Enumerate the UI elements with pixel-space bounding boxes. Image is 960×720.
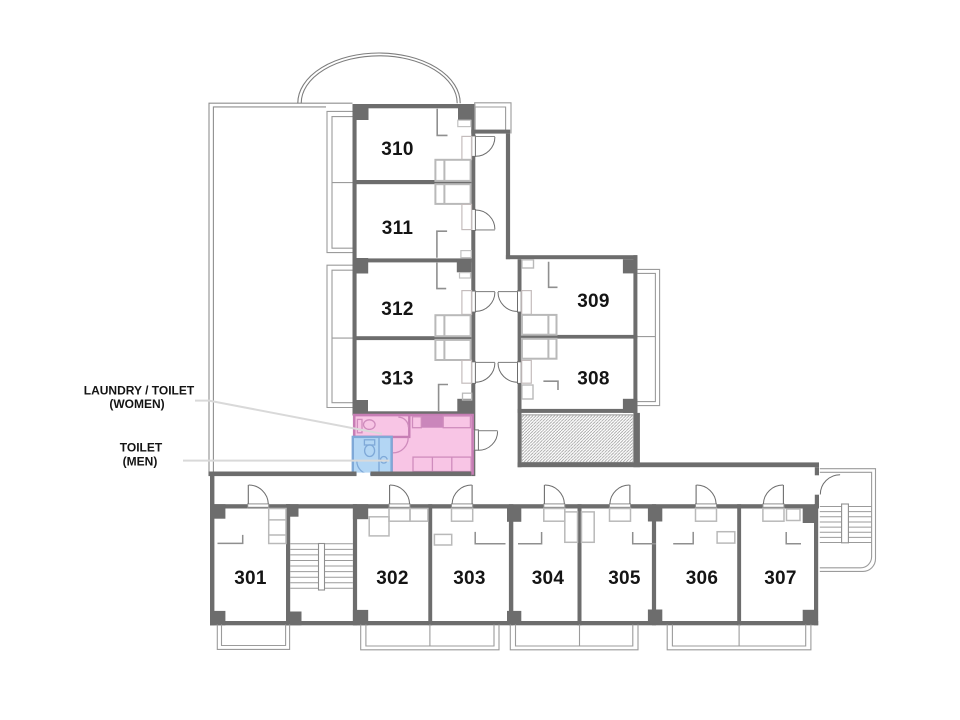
- svg-text:305: 305: [608, 568, 641, 589]
- svg-text:307: 307: [764, 568, 797, 589]
- svg-text:(WOMEN): (WOMEN): [109, 397, 164, 411]
- svg-text:304: 304: [532, 568, 565, 589]
- svg-text:310: 310: [381, 139, 414, 160]
- svg-text:309: 309: [577, 291, 610, 312]
- svg-text:(MEN): (MEN): [123, 454, 158, 468]
- svg-text:302: 302: [376, 568, 409, 589]
- svg-text:312: 312: [381, 299, 414, 320]
- svg-text:313: 313: [381, 368, 414, 389]
- svg-text:301: 301: [234, 568, 267, 589]
- svg-text:311: 311: [382, 218, 414, 239]
- svg-text:TOILET: TOILET: [120, 441, 163, 455]
- svg-text:LAUNDRY / TOILET: LAUNDRY / TOILET: [84, 383, 195, 397]
- svg-text:303: 303: [453, 568, 486, 589]
- svg-text:308: 308: [577, 368, 610, 389]
- svg-text:306: 306: [686, 568, 719, 589]
